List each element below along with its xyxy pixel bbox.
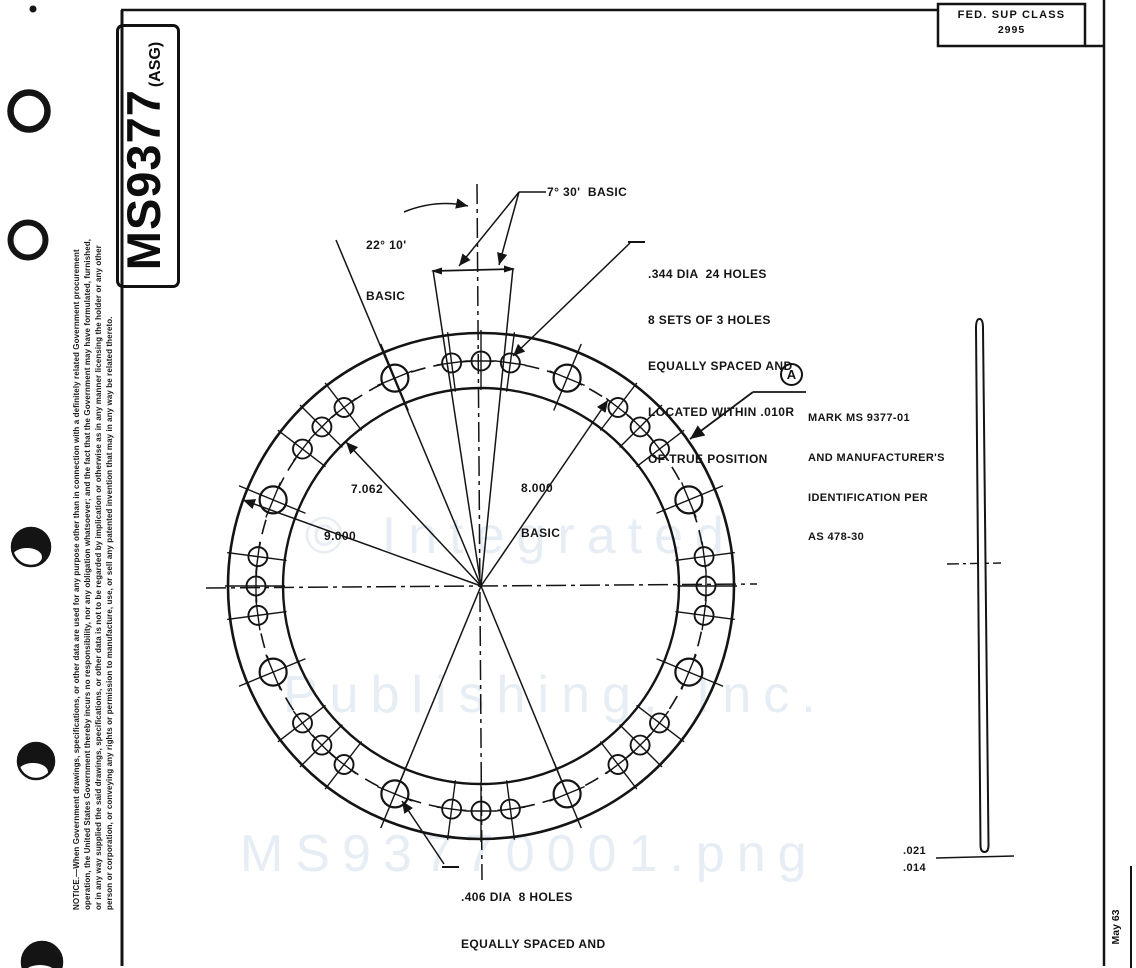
fed-sup-class: FED. SUP CLASS 2995: [938, 4, 1085, 46]
angle-basic: BASIC: [366, 288, 406, 305]
note-line: .344 DIA 24 HOLES: [648, 267, 794, 282]
punch-hole: [11, 223, 46, 258]
mark-flag-circle: A: [780, 363, 803, 386]
marking-note: MARK MS 9377-01 AND MANUFACTURER'S IDENT…: [808, 386, 945, 571]
leader-7deg30-b: [499, 192, 519, 265]
spoke-hole-left: [433, 270, 481, 586]
arrowhead-left: [431, 268, 442, 275]
date-stamp: May 63: [1110, 902, 1124, 952]
spoke-outer-dia-dim: [243, 500, 481, 586]
spoke-lower-right-hole: [481, 586, 567, 794]
angle-dim-7-30: 7° 30' BASIC: [547, 185, 627, 200]
spoke-inner-dia-dim: [346, 442, 481, 586]
note-line: EQUALLY SPACED AND: [461, 937, 607, 953]
leader-22deg: [404, 204, 468, 212]
spoke-lower-left-hole: [395, 586, 481, 794]
wedge-dimension-line: [433, 269, 513, 271]
drawing-sheet: © Integrated Publishing, Inc. MS93770001…: [0, 0, 1136, 968]
notice-line: or in any way supplied the said drawings…: [93, 80, 104, 910]
notice-line: person or corporation, or conveying any …: [104, 80, 115, 910]
thickness-max: .021: [903, 845, 926, 858]
punch-hole: [11, 93, 48, 130]
spoke-22deg: [336, 240, 481, 586]
angle-dimension-wedge: [431, 266, 515, 275]
note-line: 8 SETS OF 3 HOLES: [648, 313, 794, 328]
note-line: LOCATED WITHIN .010R: [648, 405, 794, 420]
note-line: AND MANUFACTURER'S: [808, 452, 945, 465]
notice-line: operation, the United States Government …: [82, 80, 93, 910]
note-line: EQUALLY SPACED AND: [648, 359, 794, 374]
note-line: IDENTIFICATION PER: [808, 492, 945, 505]
note-line: OF TRUE POSITION: [648, 452, 794, 467]
bolt-circle-dim: 8.000 BASIC: [521, 451, 560, 571]
scan-artifact-dot: [30, 6, 37, 13]
spoke-hole-right: [481, 268, 513, 586]
large-holes-note: .406 DIA 8 HOLES EQUALLY SPACED AND LOCA…: [461, 859, 607, 968]
note-line: MARK MS 9377-01: [808, 412, 945, 425]
government-notice: NOTICE.—When Government drawings, specif…: [71, 80, 115, 910]
drawing-number: MS9377: [116, 89, 171, 270]
thickness-min: .014: [903, 862, 926, 875]
leader-7deg30-a: [459, 192, 519, 266]
dim-basic: BASIC: [521, 526, 560, 541]
punch-hole: [17, 742, 55, 781]
fed-sup-class-label: FED. SUP CLASS: [938, 9, 1085, 21]
note-line: AS 478-30: [808, 531, 945, 544]
leader-large-holes: [402, 801, 444, 864]
note-line: .406 DIA 8 HOLES: [461, 890, 607, 906]
vertical-centerline: [477, 184, 482, 880]
outer-dia-dim: 9.000: [324, 529, 356, 544]
side-view-centerline: [947, 563, 1001, 564]
drawing-number-suffix: (ASG): [147, 42, 165, 87]
angle-dim-22-10: 22° 10' BASIC: [366, 203, 406, 339]
leader-small-holes: [513, 243, 630, 356]
title-block: MS9377 (ASG): [116, 21, 180, 291]
punch-hole: [11, 527, 51, 567]
dim-value: 8.000: [521, 481, 560, 496]
fed-sup-class-value: 2995: [938, 24, 1085, 36]
thickness-dimension-line: [936, 856, 1014, 858]
small-holes-note: .344 DIA 24 HOLES 8 SETS OF 3 HOLES EQUA…: [648, 236, 794, 498]
inner-dia-dim: 7.062: [351, 482, 383, 497]
notice-line: NOTICE.—When Government drawings, specif…: [71, 80, 82, 910]
angle-value: 22° 10': [366, 237, 406, 254]
punch-hole: [21, 941, 63, 968]
hole-punches: [11, 6, 64, 968]
gasket-side-view: [976, 319, 989, 852]
